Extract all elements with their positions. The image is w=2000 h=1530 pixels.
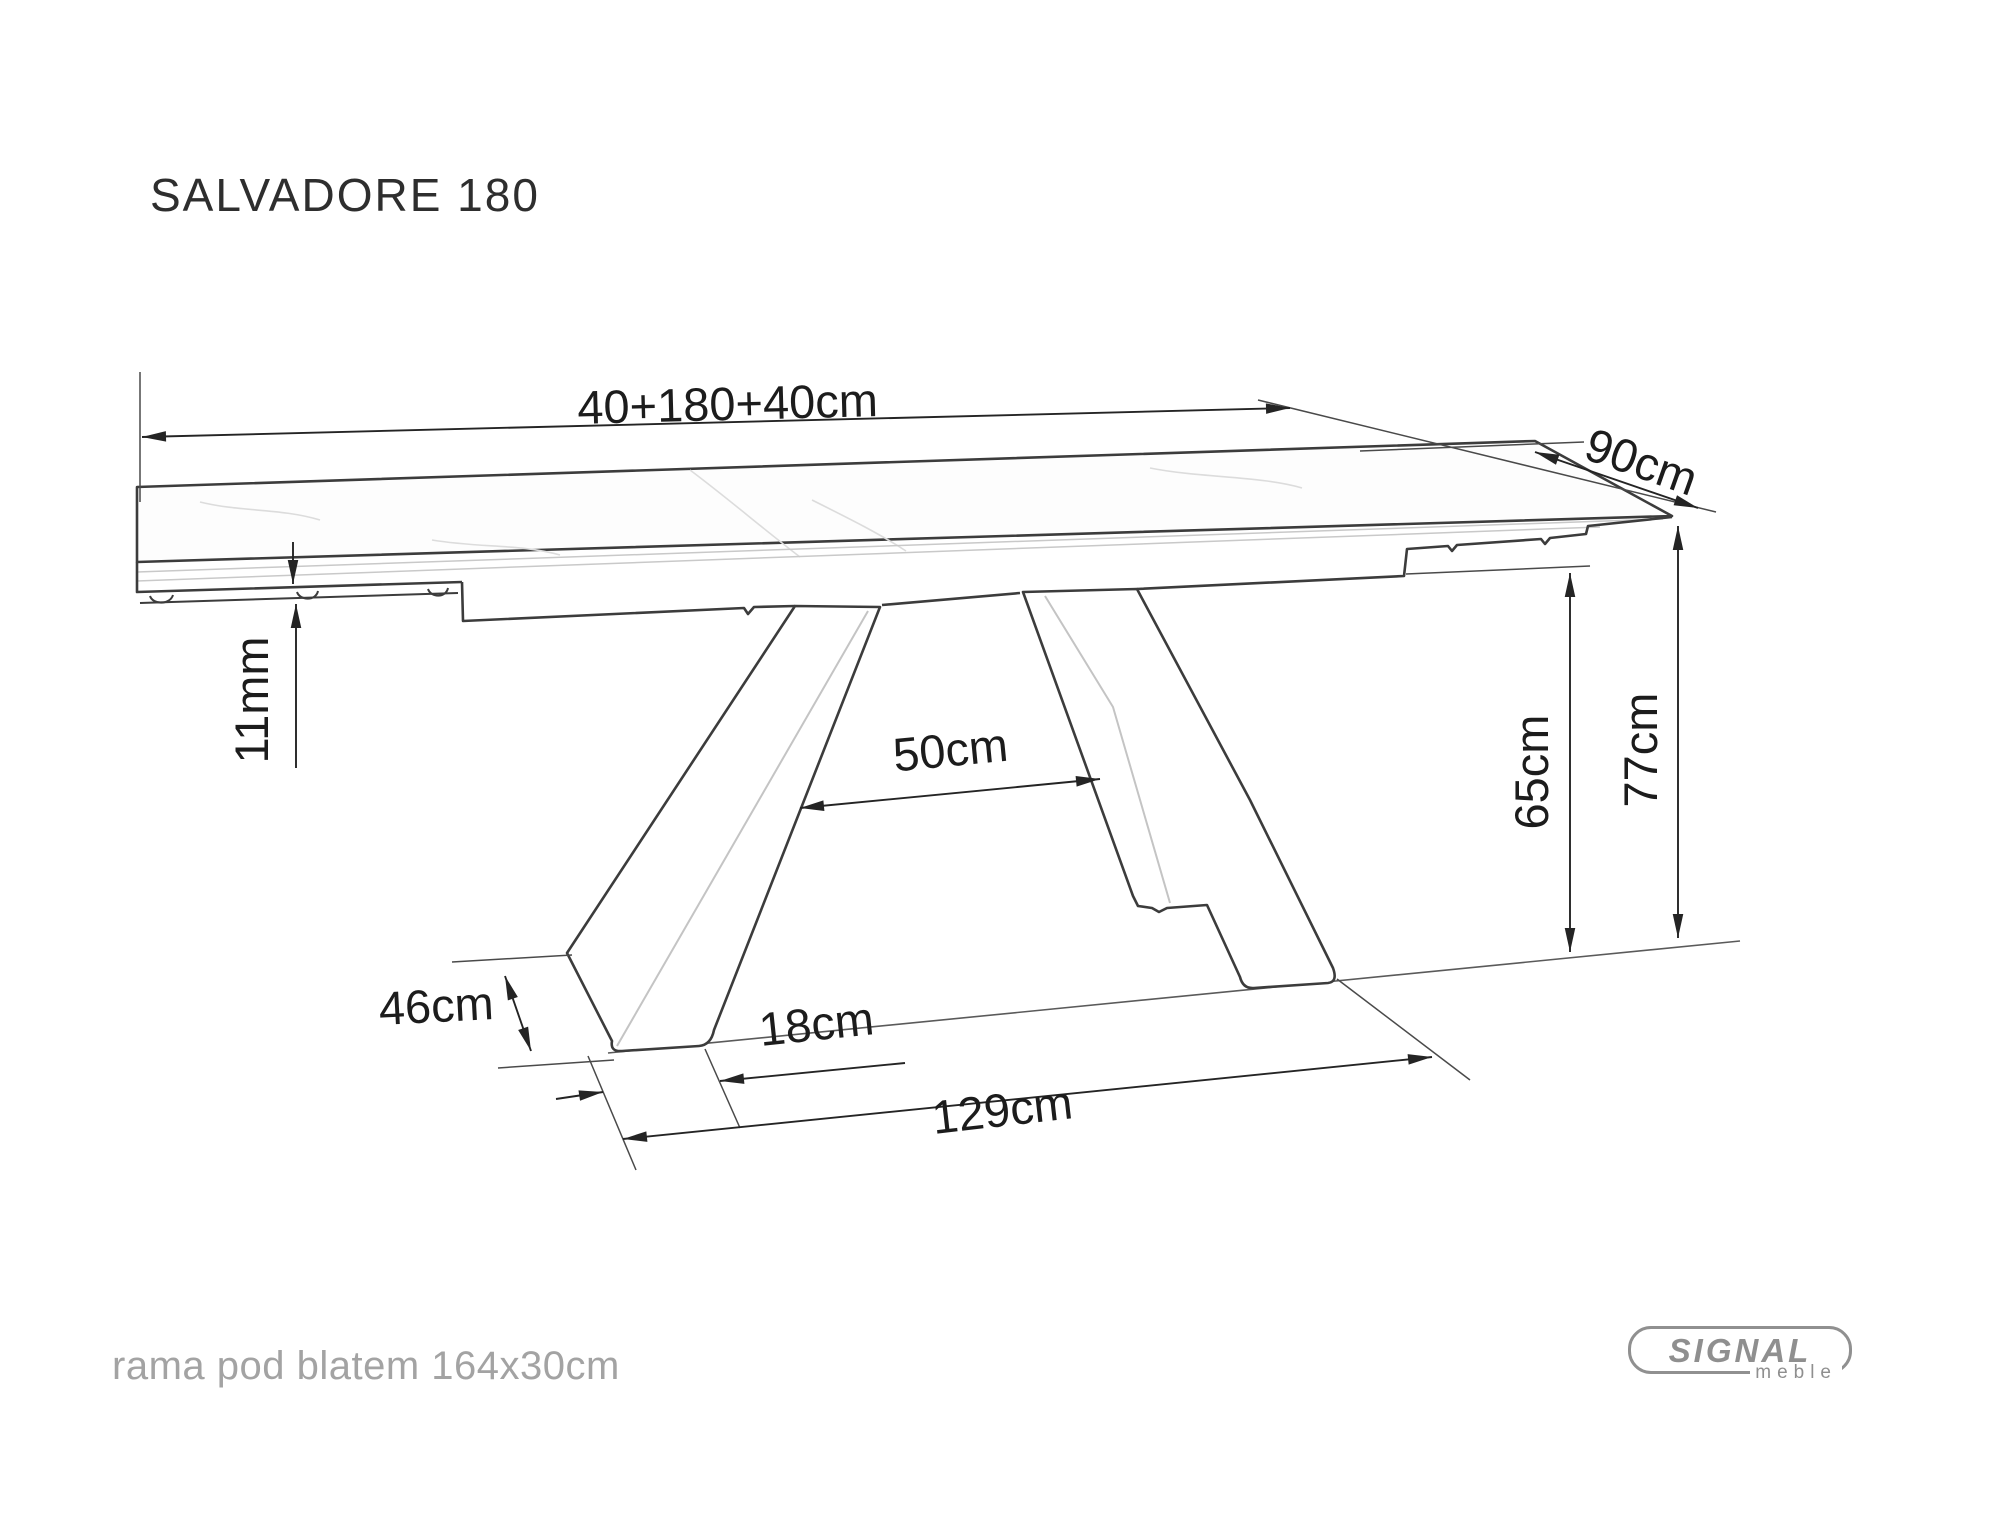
- dim-label-leg-slant: 46cm: [377, 976, 495, 1035]
- brand-logo-subtext: meble: [1750, 1362, 1842, 1384]
- table-technical-drawing: 40+180+40cm 90cm 11mm 50cm 65cm 77cm 46c…: [0, 0, 2000, 1530]
- dim-label-length: 40+180+40cm: [577, 373, 879, 434]
- dim-label-top-thickness: 11mm: [225, 636, 278, 763]
- brand-logo: SIGNAL meble: [1628, 1326, 1858, 1374]
- technical-sheet: 40+180+40cm 90cm 11mm 50cm 65cm 77cm 46c…: [0, 0, 2000, 1530]
- dim-label-underframe-height: 65cm: [1505, 715, 1558, 830]
- dim-label-leg-gap: 50cm: [891, 718, 1010, 782]
- right-leg: [1023, 589, 1335, 988]
- dim-label-table-height: 77cm: [1614, 693, 1667, 808]
- page-title: SALVADORE 180: [150, 168, 540, 222]
- underframe-note: rama pod blatem 164x30cm: [112, 1344, 620, 1389]
- left-leg: [567, 606, 880, 1051]
- dim-label-base-span: 129cm: [929, 1075, 1075, 1144]
- dim-label-foot-depth: 18cm: [756, 991, 876, 1056]
- tabletop: [137, 441, 1672, 603]
